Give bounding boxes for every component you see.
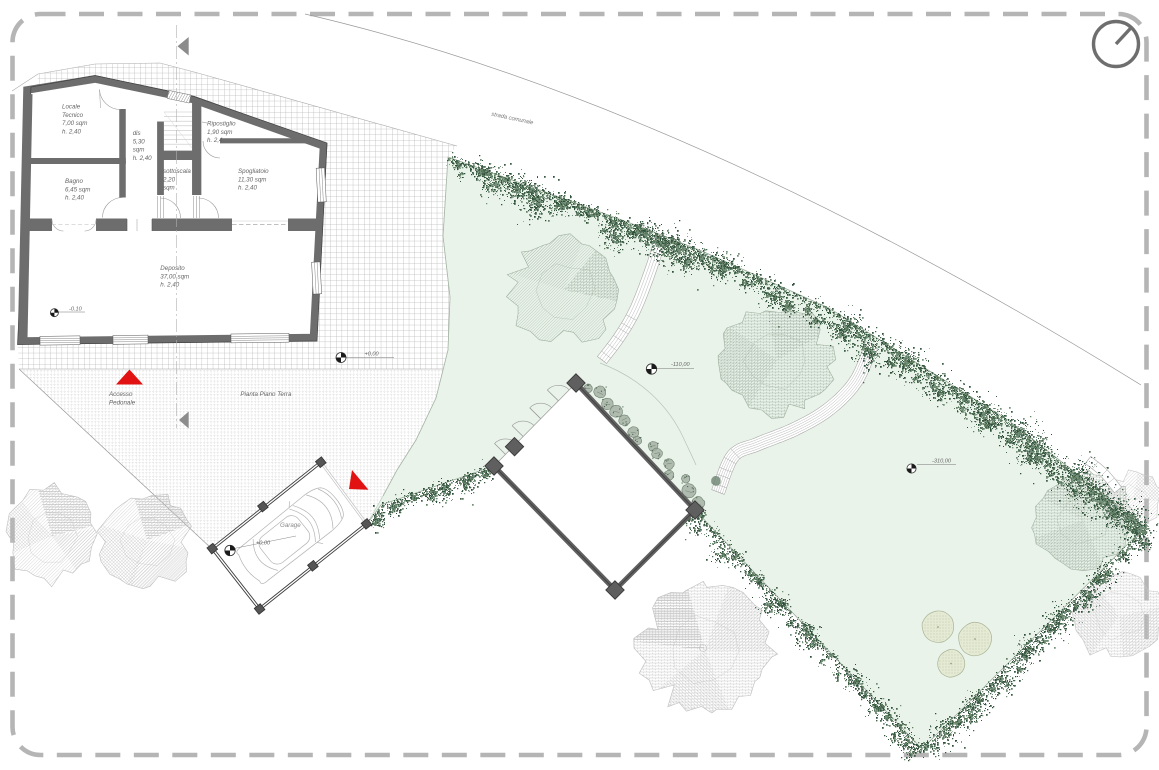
svg-text:-310,00: -310,00 xyxy=(932,459,952,465)
svg-text:Accesso: Accesso xyxy=(108,391,133,398)
svg-text:sqm: sqm xyxy=(133,147,145,154)
svg-text:h. 2,40: h. 2,40 xyxy=(65,195,84,202)
svg-text:Locale: Locale xyxy=(62,104,81,111)
svg-text:sqm: sqm xyxy=(163,185,175,192)
svg-text:strada comunale: strada comunale xyxy=(491,112,535,127)
svg-text:h. 2,40: h. 2,40 xyxy=(238,185,257,192)
svg-text:Bagno: Bagno xyxy=(65,178,83,185)
svg-text:dis: dis xyxy=(133,130,141,137)
svg-text:+0,00: +0,00 xyxy=(365,352,380,358)
svg-text:+0,00: +0,00 xyxy=(256,541,271,547)
svg-text:7,00 sqm: 7,00 sqm xyxy=(62,120,87,127)
svg-text:6,45 sqm: 6,45 sqm xyxy=(65,186,90,193)
svg-text:11,30 sqm: 11,30 sqm xyxy=(238,176,266,183)
svg-text:-0.10: -0.10 xyxy=(69,307,83,313)
svg-text:h. 2,40: h. 2,40 xyxy=(62,128,81,135)
svg-text:Pianta Piano Terra: Pianta Piano Terra xyxy=(240,391,292,398)
svg-text:Garage: Garage xyxy=(280,522,301,529)
svg-text:Pedonale: Pedonale xyxy=(109,400,136,407)
svg-text:5,30: 5,30 xyxy=(133,138,146,145)
svg-text:h. 2,40: h. 2,40 xyxy=(133,155,152,162)
svg-text:Spogliatoio: Spogliatoio xyxy=(238,168,269,175)
svg-text:h. 2,4: h. 2,4 xyxy=(207,137,223,144)
svg-text:Deposito: Deposito xyxy=(160,265,185,272)
svg-text:sottoscala: sottoscala xyxy=(163,168,191,175)
svg-text:-110,00: -110,00 xyxy=(671,362,690,368)
svg-text:Tecnico: Tecnico xyxy=(62,112,84,119)
svg-text:Ripostiglio: Ripostiglio xyxy=(207,121,236,128)
svg-text:1,90 sqm: 1,90 sqm xyxy=(207,129,232,136)
svg-text:37,00 sqm: 37,00 sqm xyxy=(160,273,189,280)
svg-text:h. 2,40: h. 2,40 xyxy=(160,282,179,289)
svg-text:2,20: 2,20 xyxy=(162,176,176,183)
